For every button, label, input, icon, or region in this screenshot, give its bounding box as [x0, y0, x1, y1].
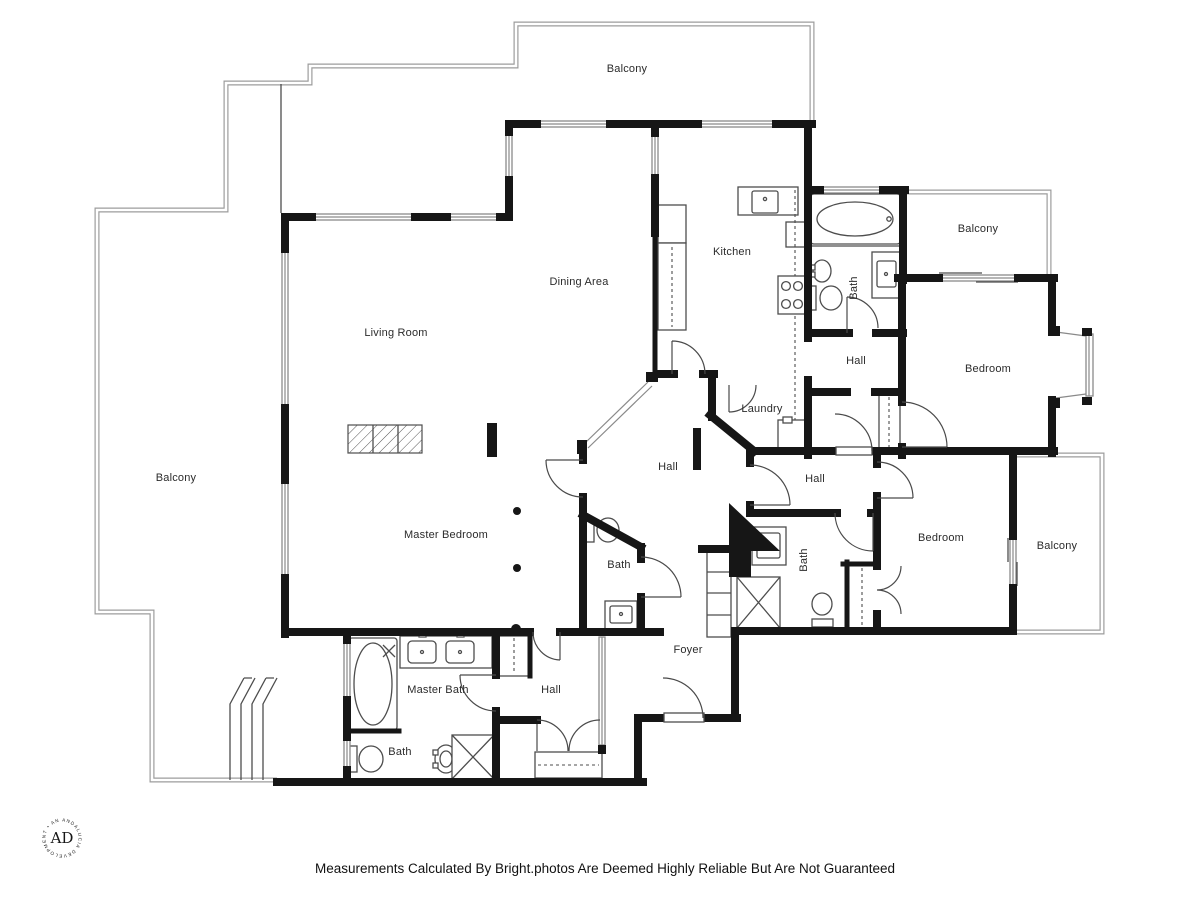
room-label-balcony-bottom-right: Balcony	[1037, 540, 1078, 552]
fireplace-hatch	[348, 425, 422, 453]
room-label-kitchen: Kitchen	[713, 246, 751, 258]
kitchen-sink-icon	[752, 191, 778, 213]
room-label-hall-center: Hall	[658, 461, 678, 473]
logo-monogram: AD	[50, 829, 74, 847]
room-label-bath-bottom-left: Bath	[388, 746, 411, 758]
room-label-bath-bottom-right: Bath	[798, 548, 810, 571]
column-dot	[513, 507, 521, 515]
room-label-living-room: Living Room	[364, 327, 427, 339]
floor-plan: BalconyLiving RoomDining AreaKitchenBath…	[0, 0, 1200, 900]
toilet-icon	[812, 593, 832, 615]
room-label-foyer: Foyer	[673, 644, 702, 656]
room-label-bath-top-right: Bath	[848, 276, 860, 299]
fridge-icon	[658, 205, 686, 243]
dishwasher-icon	[786, 222, 806, 247]
room-label-bedroom-top-right: Bedroom	[965, 363, 1011, 375]
floorplan-document: BalconyLiving RoomDining AreaKitchenBath…	[0, 0, 1200, 900]
room-label-hall-right: Hall	[805, 473, 825, 485]
room-label-laundry: Laundry	[741, 403, 782, 415]
room-label-master-bedroom: Master Bedroom	[404, 529, 488, 541]
room-label-balcony-top: Balcony	[607, 63, 648, 75]
column-dot	[511, 624, 521, 634]
kitchen-counter	[658, 243, 686, 330]
washer-icon	[778, 420, 806, 448]
round-sink-icon	[813, 260, 831, 282]
room-label-bath-center: Bath	[607, 559, 630, 571]
room-label-hall-bottom: Hall	[541, 684, 561, 696]
footer-disclaimer: Measurements Calculated By Bright.photos…	[315, 861, 895, 876]
room-label-balcony-top-right: Balcony	[958, 223, 999, 235]
room-label-balcony-left: Balcony	[156, 472, 197, 484]
room-label-bedroom-bottom-right: Bedroom	[918, 532, 964, 544]
column-dot	[513, 564, 521, 572]
room-label-hall-top-right: Hall	[846, 355, 866, 367]
room-label-dining-area: Dining Area	[549, 276, 609, 288]
foyer-shelves-icon	[707, 551, 731, 637]
room-label-master-bath: Master Bath	[407, 684, 469, 696]
stove-icon	[778, 276, 806, 314]
